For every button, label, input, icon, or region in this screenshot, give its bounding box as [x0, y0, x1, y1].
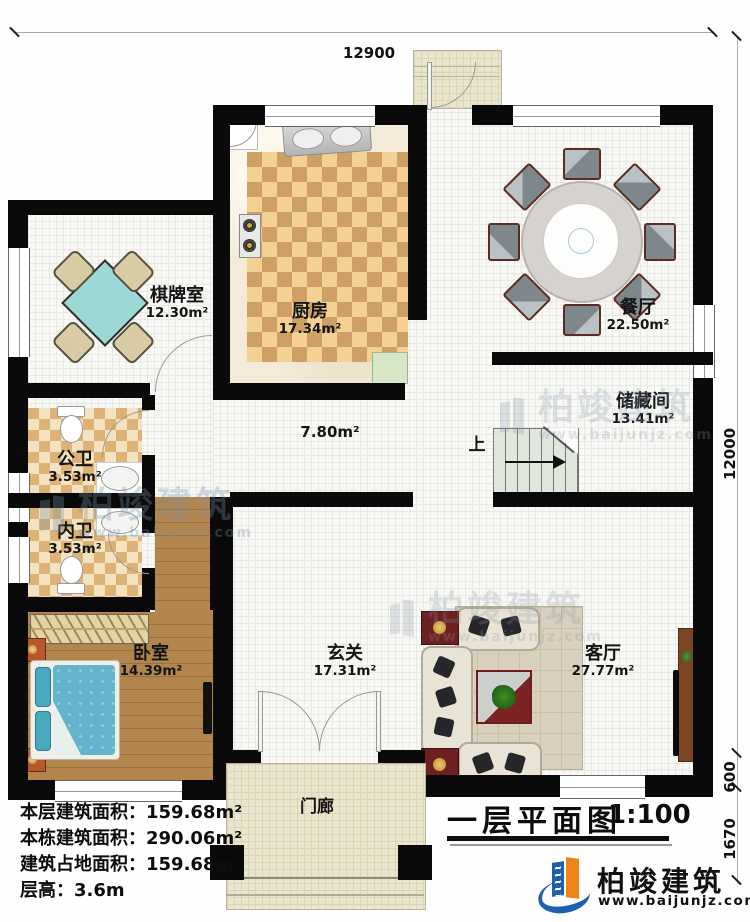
room-area: 27.77m² [560, 664, 646, 679]
wall [8, 357, 28, 473]
title-underline-thick [447, 836, 669, 841]
room-name: 厨房 [270, 302, 350, 322]
stairs-arrow-head [553, 455, 566, 469]
room-label-private-bath: 内卫 3.53m² [42, 522, 108, 557]
stairs-up-label: 上 [466, 436, 488, 455]
sofa-main [421, 646, 473, 754]
sofa-cushion [435, 686, 458, 709]
wall [213, 105, 230, 398]
back-door-leaf [427, 62, 432, 110]
room-label-living: 客厅 27.77m² [560, 644, 646, 679]
room-label-kitchen: 厨房 17.34m² [270, 302, 350, 337]
building-info: 本层建筑面积：159.68m² 本栋建筑面积：290.06m² 建筑占地面积：1… [20, 800, 242, 904]
porch-floor [226, 763, 426, 910]
room-area: 14.39m² [108, 664, 194, 679]
window [8, 248, 30, 357]
wall [210, 497, 233, 610]
room-area: 17.31m² [302, 664, 388, 679]
wall [472, 105, 513, 125]
dining-table-center [568, 228, 594, 254]
entry-door-leaf [258, 691, 263, 752]
title-underline-thin [450, 844, 672, 846]
wall [8, 780, 55, 800]
room-area: 13.41m² [597, 412, 689, 427]
room-label-storage: 储藏间 13.41m² [597, 392, 689, 427]
wood-hall-floor [155, 497, 213, 612]
wall [8, 200, 28, 248]
wardrobe-rail [31, 628, 148, 630]
room-label-porch: 门廊 [285, 798, 349, 817]
window [265, 105, 375, 127]
wall [142, 455, 155, 533]
top-dimension-line [14, 32, 714, 33]
sofa-cushion [500, 615, 522, 637]
wall [213, 383, 405, 400]
room-area: 22.50m² [595, 318, 681, 333]
bed [30, 660, 120, 760]
wall [142, 395, 155, 410]
window [513, 105, 660, 127]
porch-column [398, 845, 432, 880]
wall [8, 583, 28, 800]
wall [420, 775, 560, 797]
room-name: 棋牌室 [132, 286, 222, 306]
room-name: 卧室 [108, 644, 194, 664]
right-dimension-upper: 12000 [721, 424, 739, 484]
room-name: 玄关 [302, 644, 388, 664]
room-area: 7.80m² [295, 424, 365, 441]
coffee-table [476, 670, 532, 724]
right-dimension-lower: 1670 [721, 815, 739, 863]
room-area: 17.34m² [270, 322, 350, 337]
bedroom-tv [203, 682, 212, 734]
window [55, 780, 182, 802]
brand-website: www.baijunjz.com [598, 893, 750, 909]
room-label-hall: 7.80m² [295, 424, 365, 441]
room-area: 12.30m² [132, 306, 222, 321]
chair [563, 148, 601, 180]
wall [693, 105, 713, 305]
room-name: 储藏间 [597, 392, 689, 412]
wall [492, 352, 713, 365]
wall [693, 378, 713, 790]
plant-small [682, 651, 691, 662]
wall [645, 775, 713, 797]
toilet-tank [57, 583, 85, 594]
info-storey-height: 层高：3.6m [20, 878, 242, 904]
room-name: 公卫 [42, 450, 108, 470]
wall [8, 597, 150, 612]
room-name: 餐厅 [595, 298, 681, 318]
logo-swoosh [536, 876, 593, 918]
wall [493, 492, 713, 507]
kitchen-stove [239, 214, 261, 258]
drawing-scale: 1:100 [608, 800, 691, 830]
sink-basin [291, 127, 324, 150]
sofa-cushion [468, 615, 491, 638]
room-name: 客厅 [560, 644, 646, 664]
window [8, 537, 30, 583]
room-label-public-bath: 公卫 3.53m² [42, 450, 108, 485]
cabinet-medallion [433, 621, 446, 634]
wall [8, 383, 150, 398]
wall [408, 105, 427, 320]
window [693, 305, 715, 378]
info-floor-area: 本层建筑面积：159.68m² [20, 800, 242, 826]
room-label-chess: 棋牌室 12.30m² [132, 286, 222, 321]
stove-knob [247, 223, 252, 228]
wall [8, 493, 155, 508]
chair [488, 223, 520, 261]
wall [182, 780, 230, 800]
top-dimension-value: 12900 [333, 44, 405, 62]
wardrobe [30, 614, 149, 644]
sink-basin [329, 125, 362, 148]
floor-plan: 12900 12000 600 1670 [0, 0, 750, 922]
entry-door-leaf [376, 691, 381, 752]
sofa-cushion [432, 655, 456, 679]
room-area: 3.53m² [42, 542, 108, 557]
cabinet [421, 611, 459, 645]
drawing-title: 一层平面图 [447, 796, 622, 840]
wall [228, 750, 261, 763]
sofa-cushion [433, 716, 454, 737]
pillow [35, 711, 51, 751]
room-name: 门廊 [285, 798, 349, 817]
sofa-cushion [504, 752, 526, 774]
room-name: 内卫 [42, 522, 108, 542]
sofa-cushion [471, 751, 494, 774]
right-dimension-middle: 600 [721, 753, 739, 801]
wall [8, 522, 28, 537]
room-label-bedroom: 卧室 14.39m² [108, 644, 194, 679]
pillow [35, 667, 51, 707]
porch-step-line [226, 877, 424, 879]
wall [8, 200, 215, 215]
kitchen-mat [372, 352, 408, 384]
room-label-dining: 餐厅 22.50m² [595, 298, 681, 333]
room-label-foyer: 玄关 17.31m² [302, 644, 388, 679]
toilet-bowl [60, 556, 83, 584]
nightstand-knob [28, 645, 37, 654]
info-total-area: 本栋建筑面积：290.06m² [20, 826, 242, 852]
brand-logo-icon [538, 856, 592, 910]
living-tv [673, 670, 679, 756]
cabinet-medallion [433, 758, 446, 771]
stairs-arrow-line [505, 461, 555, 463]
sofa-top [456, 607, 540, 651]
wall [230, 492, 413, 507]
info-footprint-area: 建筑占地面积：159.68m² [20, 852, 242, 878]
room-area: 3.53m² [42, 470, 108, 485]
chair [644, 223, 676, 261]
porch-step-line [226, 894, 424, 896]
plant [492, 685, 516, 709]
toilet-bowl [60, 415, 83, 443]
stove-knob [247, 243, 252, 248]
